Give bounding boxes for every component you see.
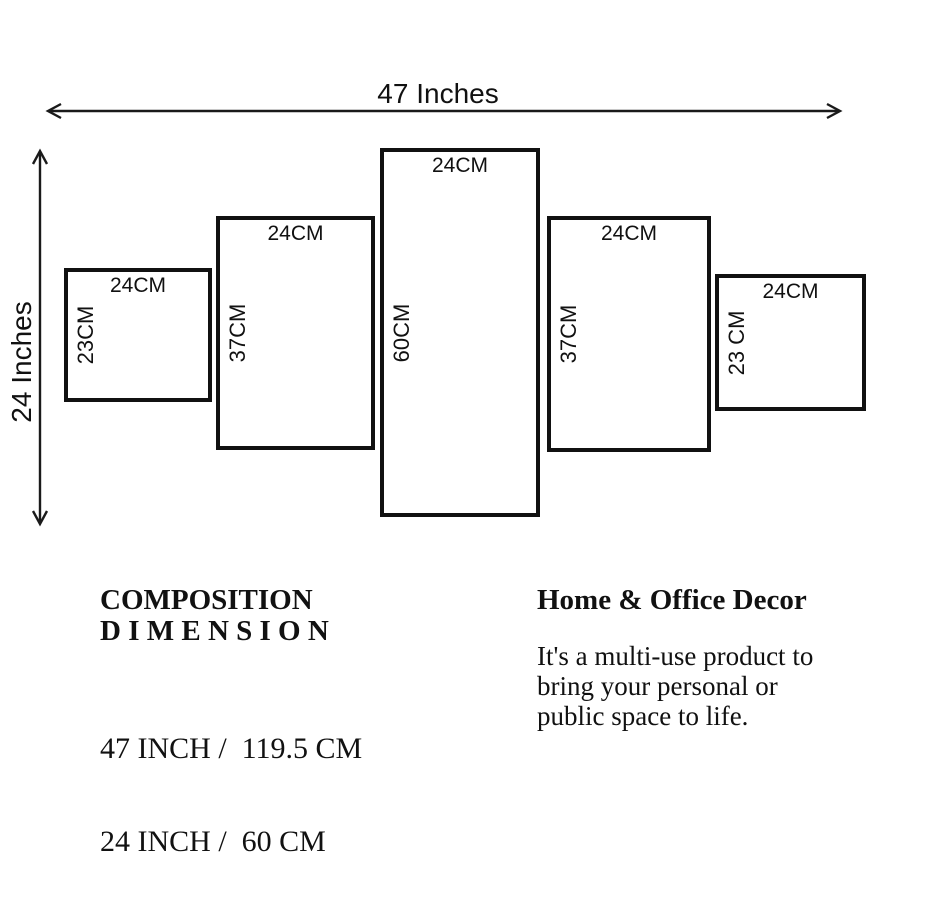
- panel-3: 24CM 60CM: [380, 148, 540, 517]
- panel-2: 24CM 37CM: [216, 216, 375, 450]
- panel-1: 24CM 23CM: [64, 268, 212, 402]
- panel-2-width-label: 24CM: [220, 223, 371, 245]
- panel-1-width-label: 24CM: [68, 275, 208, 297]
- decor-body-line1: It's a multi-use product to: [537, 641, 813, 671]
- composition-title-line1: COMPOSITION: [100, 585, 362, 616]
- composition-dimension-block: COMPOSITION D I M E N S I O N 47 INCH / …: [100, 585, 362, 919]
- panel-4: 24CM 37CM: [547, 216, 711, 452]
- decor-description-block: Home & Office Decor It's a multi-use pro…: [537, 585, 813, 731]
- panel-5: 24CM 23 CM: [715, 274, 866, 411]
- decor-body-line2: bring your personal or: [537, 671, 813, 701]
- panel-1-height-label: 23CM: [75, 306, 97, 365]
- panel-5-width-label: 24CM: [719, 281, 862, 303]
- decor-body-line3: public space to life.: [537, 701, 813, 731]
- dimension-inch-cm-line1: 47 INCH / 119.5 CM: [100, 733, 362, 764]
- composition-title-line2: D I M E N S I O N: [100, 616, 362, 647]
- dimension-inch-cm-line2: 24 INCH / 60 CM: [100, 826, 362, 857]
- width-dimension-arrow-icon: [45, 101, 843, 121]
- height-dimension-arrow-icon: [30, 148, 50, 527]
- panel-3-width-label: 24CM: [384, 155, 536, 177]
- panel-4-width-label: 24CM: [551, 223, 707, 245]
- panel-5-height-label: 23 CM: [726, 310, 748, 375]
- panel-2-height-label: 37CM: [227, 304, 249, 363]
- composition-dimension-diagram: 47 Inches 24 Inches 24CM 23CM 24CM 37CM …: [0, 0, 945, 800]
- panel-4-height-label: 37CM: [558, 305, 580, 364]
- decor-title: Home & Office Decor: [537, 585, 813, 616]
- panel-3-height-label: 60CM: [391, 303, 413, 362]
